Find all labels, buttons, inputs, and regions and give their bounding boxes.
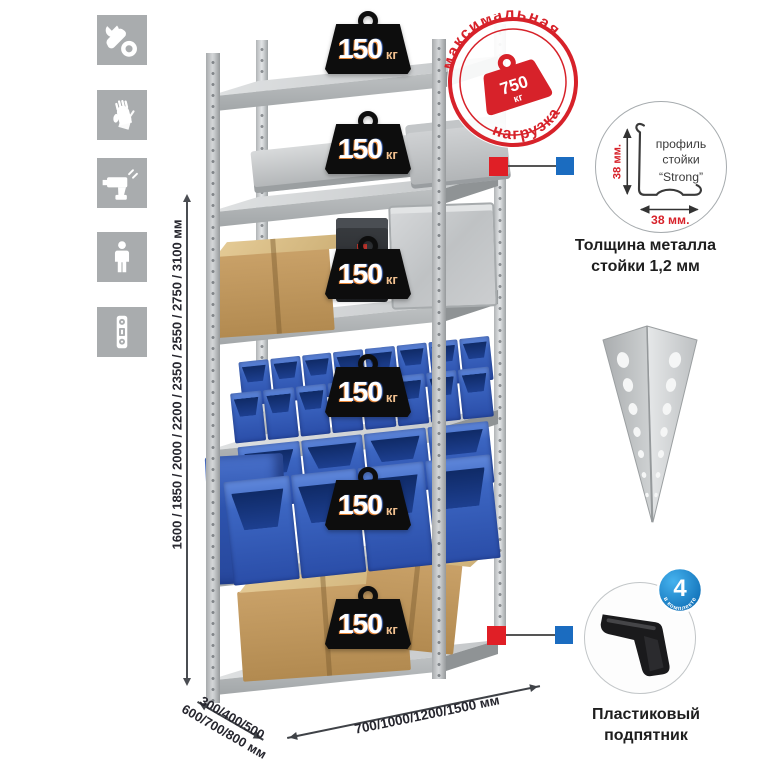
- callout-marker-red: [487, 626, 506, 645]
- callout-line: [506, 634, 557, 636]
- rack-front-left-post: [206, 53, 220, 703]
- svg-text:стойки: стойки: [662, 153, 699, 167]
- svg-text:38 мм.: 38 мм.: [611, 144, 623, 179]
- drill-icon: [97, 158, 147, 208]
- foot-caption: Пластиковый подпятник: [566, 704, 726, 746]
- callout-marker-blue: [556, 157, 574, 175]
- cardboard-box: [213, 248, 334, 338]
- width-dimension-label: 700/1000/1200/1500 мм: [313, 684, 541, 745]
- height-dimension-label: 1600 / 1850 / 2000 / 2200 / 2350 / 2550 …: [170, 175, 185, 595]
- height-dimension-line: [186, 197, 188, 683]
- infographic-canvas: 150кг 150кг 150кг 150кг 150кг 150кг макс…: [0, 0, 765, 765]
- gloves-icon: [97, 90, 147, 140]
- level-icon: [97, 307, 147, 357]
- svg-text:профиль: профиль: [656, 137, 707, 151]
- svg-text:“Strong”: “Strong”: [659, 170, 703, 184]
- callout-line: [508, 165, 558, 167]
- rack-front-right-post: [432, 39, 446, 679]
- load-badge: 150кг: [325, 236, 411, 302]
- load-badge: 150кг: [325, 11, 411, 77]
- load-badge: 150кг: [325, 354, 411, 420]
- load-badge: 150кг: [325, 111, 411, 177]
- included-count-badge: 4 в комплекте: [656, 566, 704, 614]
- svg-text:4: 4: [673, 575, 687, 602]
- callout-marker-blue: [555, 626, 573, 644]
- wrench-icon: [97, 15, 147, 65]
- svg-text:38 мм.: 38 мм.: [651, 213, 689, 227]
- load-badge: 150кг: [325, 586, 411, 652]
- profile-caption: Толщина металла стойки 1,2 мм: [563, 235, 728, 277]
- perforated-post-image: [595, 312, 707, 527]
- post-profile-detail: 38 мм. 38 мм. профиль стойки “Strong”: [595, 101, 727, 233]
- person-icon: [97, 232, 147, 282]
- load-badge: 150кг: [325, 467, 411, 533]
- callout-marker-red: [489, 157, 508, 176]
